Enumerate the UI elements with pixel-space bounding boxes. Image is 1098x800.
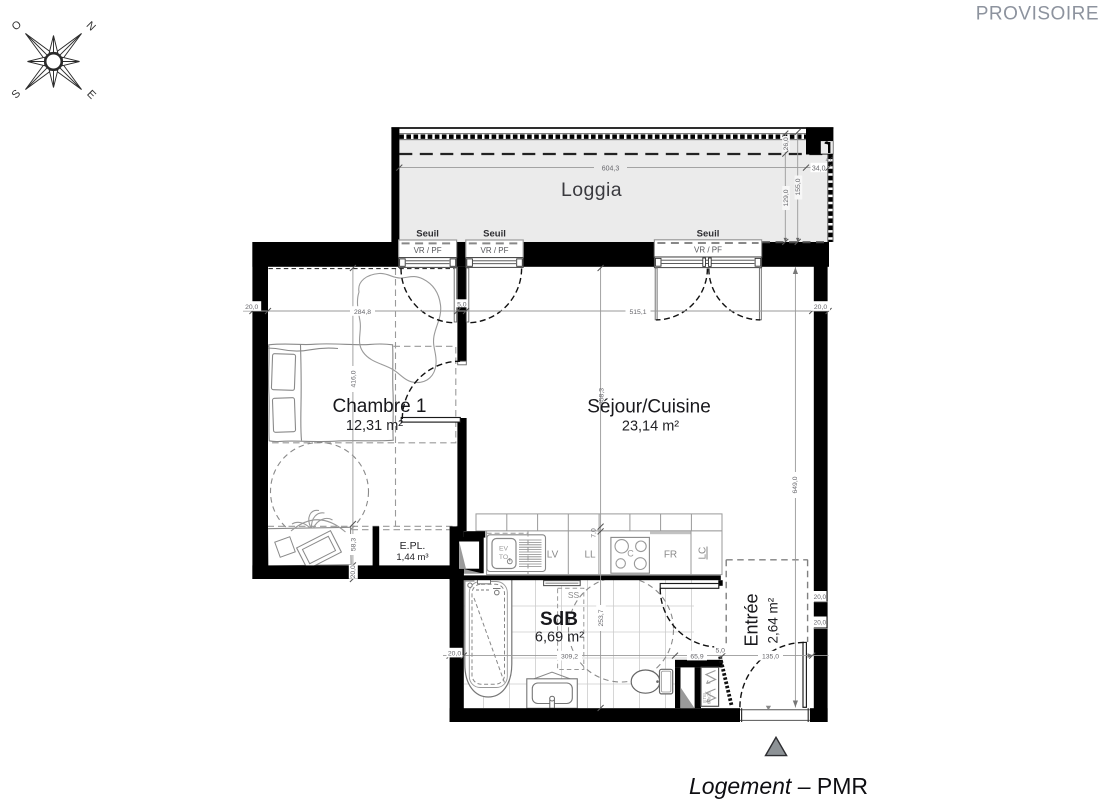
svg-text:65,9: 65,9 [690, 653, 703, 660]
svg-text:129,0: 129,0 [783, 189, 790, 206]
svg-text:135,0: 135,0 [762, 653, 779, 660]
svg-text:20,0: 20,0 [245, 304, 258, 311]
svg-text:155,0: 155,0 [795, 178, 802, 195]
svg-text:SS: SS [568, 590, 580, 600]
svg-text:TO: TO [499, 554, 508, 561]
svg-text:Seuil: Seuil [416, 229, 439, 240]
svg-text:20,0: 20,0 [448, 650, 461, 657]
svg-text:PROVISOIRE: PROVISOIRE [976, 4, 1098, 25]
svg-text:23,14 m²: 23,14 m² [622, 419, 679, 435]
svg-text:5,0: 5,0 [457, 302, 467, 309]
svg-text:Entrée: Entrée [742, 593, 762, 646]
svg-text:58,3: 58,3 [350, 538, 357, 551]
svg-text:309,2: 309,2 [561, 653, 578, 660]
svg-text:284,8: 284,8 [354, 309, 371, 316]
svg-text:20,0: 20,0 [814, 304, 827, 311]
svg-text:VR / PF: VR / PF [694, 245, 722, 254]
svg-text:34,0: 34,0 [812, 166, 826, 173]
svg-text:LL: LL [584, 550, 596, 561]
svg-text:1,44 m³: 1,44 m³ [396, 552, 428, 563]
svg-text:2,64 m²: 2,64 m² [766, 597, 781, 643]
svg-text:Loggia: Loggia [561, 179, 622, 201]
svg-text:515,1: 515,1 [629, 309, 646, 316]
svg-text:EV: EV [499, 546, 509, 553]
svg-text:Logement – PMR: Logement – PMR [689, 773, 868, 799]
svg-text:4,0: 4,0 [826, 158, 834, 164]
svg-text:7,0: 7,0 [590, 528, 597, 538]
svg-text:20,0: 20,0 [814, 620, 827, 627]
svg-text:E.PL.: E.PL. [400, 540, 426, 552]
svg-text:FR: FR [664, 550, 677, 561]
svg-text:253,7: 253,7 [598, 609, 605, 626]
svg-text:604,3: 604,3 [602, 166, 620, 173]
svg-text:VR / PF: VR / PF [480, 246, 508, 255]
svg-text:Seuil: Seuil [483, 229, 506, 240]
svg-text:VR / PF: VR / PF [414, 246, 442, 255]
svg-text:Seuil: Seuil [697, 228, 720, 239]
svg-text:649,0: 649,0 [792, 476, 799, 493]
svg-text:LV: LV [547, 550, 559, 561]
svg-text:12,31 m²: 12,31 m² [346, 418, 403, 434]
svg-text:5,0: 5,0 [715, 647, 725, 654]
svg-text:C: C [627, 549, 634, 559]
svg-text:Séjour/Cuisine: Séjour/Cuisine [587, 397, 711, 418]
svg-text:416,0: 416,0 [350, 370, 357, 387]
svg-text:20,0: 20,0 [350, 565, 357, 578]
svg-text:6,69 m²: 6,69 m² [535, 630, 584, 646]
svg-text:SdB: SdB [540, 609, 578, 630]
svg-text:26,0: 26,0 [783, 137, 790, 150]
svg-text:Chambre 1: Chambre 1 [333, 396, 427, 417]
svg-text:20,0: 20,0 [814, 594, 827, 601]
